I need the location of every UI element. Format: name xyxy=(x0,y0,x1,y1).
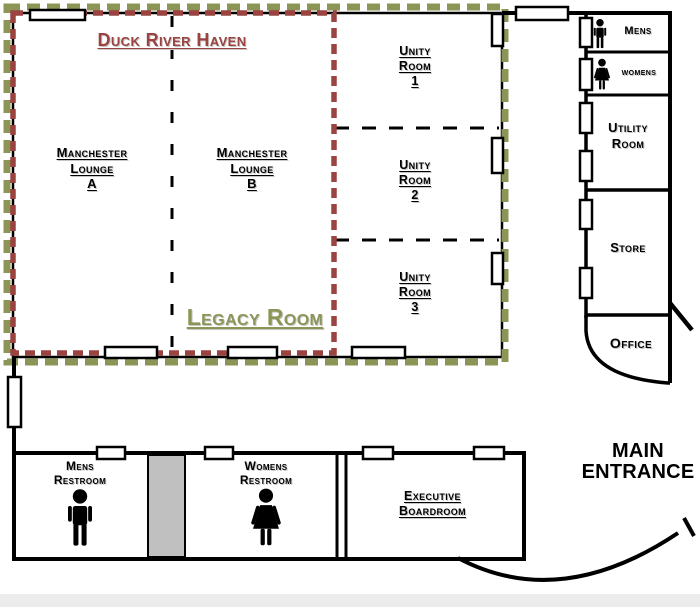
room-label-manchester-lounge-a: Manchester Lounge A xyxy=(22,145,162,192)
door-opening xyxy=(228,347,277,358)
door-opening xyxy=(516,7,568,20)
door-opening xyxy=(474,447,504,459)
door-opening xyxy=(97,447,125,459)
door-opening xyxy=(580,268,592,298)
duck-river-haven-title: Duck River Haven xyxy=(42,30,302,52)
page-edge-shadow xyxy=(0,594,700,607)
room-label-manchester-lounge-b: Manchester Lounge B xyxy=(182,145,322,192)
door-opening xyxy=(580,103,592,133)
door-opening xyxy=(492,253,503,284)
room-label-mens-wc: Mens xyxy=(612,25,664,38)
service-shaft-block xyxy=(148,455,185,557)
main-entrance-label: MAIN ENTRANCE xyxy=(568,441,700,483)
man-icon xyxy=(594,19,606,48)
room-label-womens-wc: womens xyxy=(610,66,668,79)
legacy-room-label: Legacy Room xyxy=(130,304,380,332)
room-label-unity-room-1: Unity Room 1 xyxy=(379,44,451,89)
door-opening xyxy=(352,347,405,358)
room-label-executive-boardroom: Executive Boardroom xyxy=(361,489,504,519)
room-label-utility-room: Utility Room xyxy=(594,120,662,151)
room-label-office: Office xyxy=(596,335,666,352)
door-opening xyxy=(492,138,503,173)
door-opening xyxy=(580,18,592,47)
room-label-unity-room-2: Unity Room 2 xyxy=(379,158,451,203)
duck-river-haven-label: Duck River Haven xyxy=(42,30,302,52)
woman-icon xyxy=(595,59,609,90)
floor-plan: Duck River Haven Manchester Lounge A Man… xyxy=(0,0,700,607)
door-opening xyxy=(363,447,393,459)
room-label-mens-restroom: Mens Restroom xyxy=(25,459,135,488)
door-opening xyxy=(580,200,592,229)
legacy-room-title: Legacy Room xyxy=(130,304,380,332)
door-opening xyxy=(492,14,503,46)
room-label-womens-restroom: Womens Restroom xyxy=(207,459,325,488)
door-opening xyxy=(205,447,233,459)
door-opening xyxy=(8,377,21,427)
door-opening xyxy=(580,59,592,90)
entrance-door-jamb xyxy=(684,518,694,536)
door-opening xyxy=(580,151,592,181)
door-opening xyxy=(30,10,85,20)
door-opening xyxy=(105,347,157,358)
entrance-angled-wall xyxy=(670,303,692,330)
room-label-store: Store xyxy=(595,240,661,256)
room-label-unity-room-3: Unity Room 3 xyxy=(379,270,451,315)
